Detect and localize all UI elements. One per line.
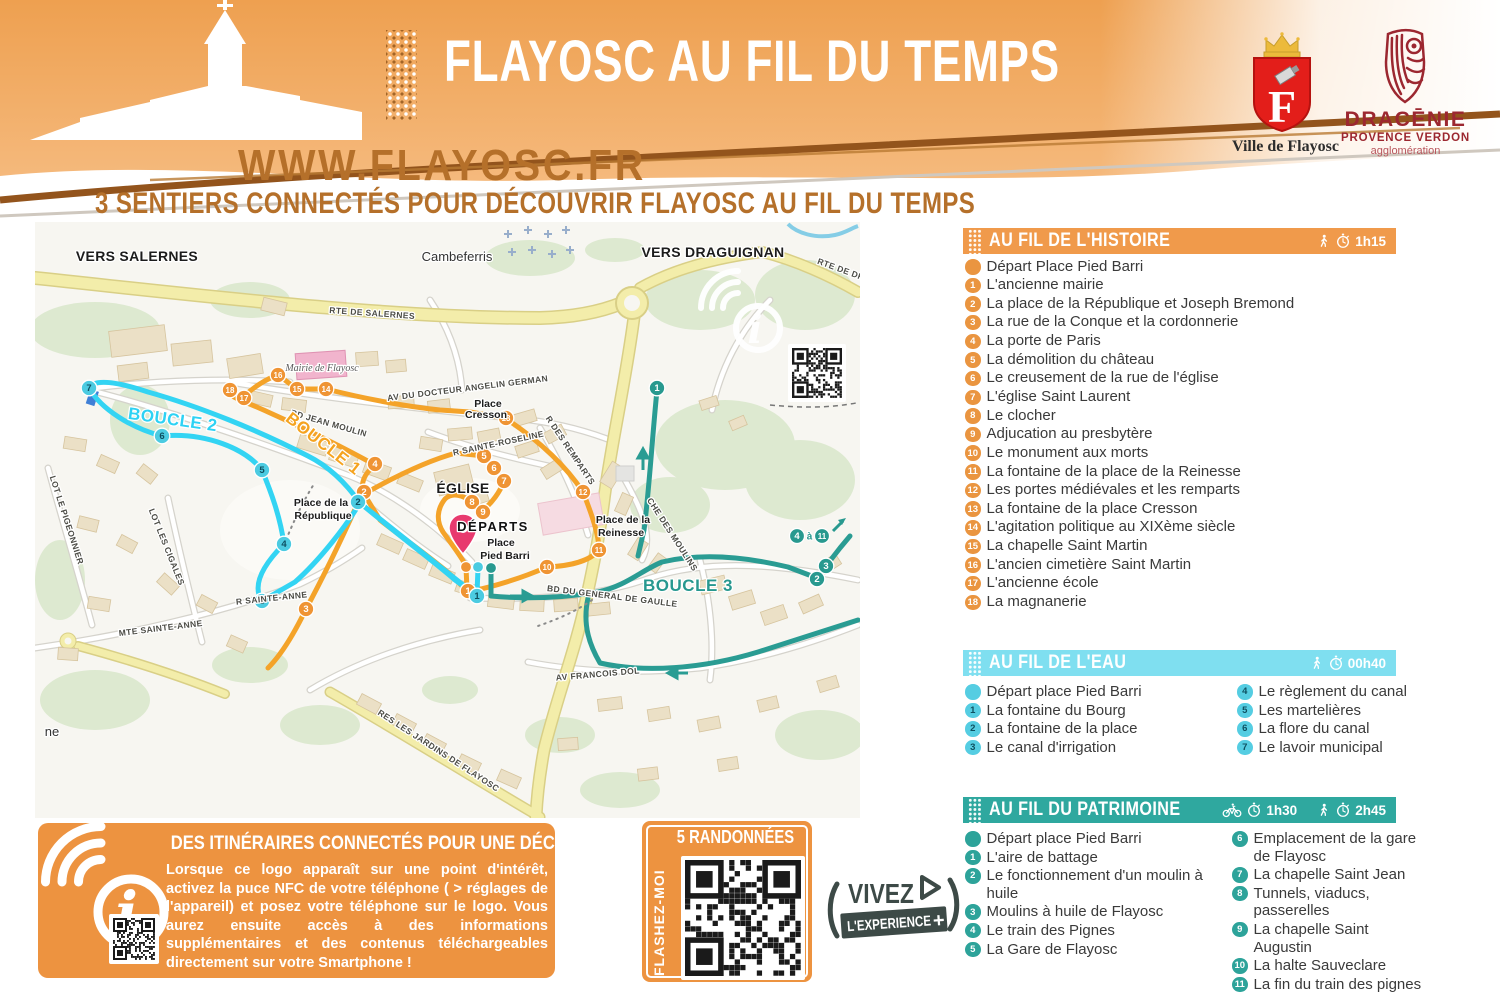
- walk-duration: 1h15: [1355, 234, 1386, 249]
- map-label: Reinesse: [598, 527, 644, 539]
- poi-label: Le clocher: [987, 407, 1056, 425]
- poi-label: La halte Sauveclare: [1254, 957, 1387, 975]
- poi-number-badge: 3: [965, 740, 981, 756]
- section-title: AU FIL DU PATRIMOINE: [989, 799, 1181, 821]
- poi-item: 9Adjucation au presbytère: [965, 425, 1395, 444]
- randonnees-qr-box: 5 RANDONNÉES FLASHEZ-MOI: [642, 821, 812, 982]
- poi-number-badge: 1: [965, 703, 981, 719]
- poi-label: L'aire de battage: [987, 849, 1098, 867]
- poi-number-badge: 12: [965, 483, 981, 499]
- nfc-info-icon: [701, 271, 780, 353]
- poi-item: 18La magnanerie: [965, 593, 1395, 612]
- poi-label: Le train des Pignes: [987, 922, 1115, 940]
- poi-number-badge: 4: [965, 334, 981, 350]
- section-eau-header: AU FIL DE L'EAU 00h40: [963, 650, 1396, 676]
- route-marker-number: 2: [814, 574, 819, 585]
- route-marker-orange: [476, 448, 492, 464]
- section-histoire-header: AU FIL DE L'HISTOIRE 1h15: [963, 228, 1396, 254]
- dracenie-agglo: agglomération: [1338, 145, 1473, 157]
- poi-item: Départ place Pied Barri: [965, 830, 1237, 848]
- poi-item: 5La démolition du château: [965, 350, 1395, 369]
- poi-number-badge: 6: [965, 371, 981, 387]
- duration-info: 00h40: [1309, 655, 1386, 671]
- poi-item: 7La chapelle Saint Jean: [1232, 866, 1422, 884]
- poi-label: La chapelle Saint Jean: [1254, 866, 1406, 884]
- page-title: FLAYOSC AU FIL DU TEMPS: [444, 28, 1060, 95]
- depart-dot-teal: [486, 563, 497, 574]
- route-marker-orange: [460, 583, 476, 599]
- route-marker-number: 2: [355, 497, 360, 508]
- route-marker-cyan: [469, 588, 485, 604]
- website-url: WWW.FLAYOSC.FR: [238, 141, 646, 191]
- route-marker-number: 1: [465, 586, 471, 597]
- map-label: VERS SALERNES: [76, 248, 198, 264]
- poi-number-badge: 7: [1232, 867, 1248, 883]
- route-marker-teal: [649, 380, 665, 396]
- poi-item: Départ place Pied Barri: [965, 683, 1227, 701]
- dracenie-subname: PROVENCE VERDON: [1338, 132, 1473, 144]
- poi-label: L'ancienne école: [987, 574, 1099, 592]
- randonnees-qr-code: [678, 853, 808, 983]
- map-label: AV DU DOCTEUR ANGELIN GERMAN: [387, 373, 549, 403]
- vivez-word: VIVEZ: [848, 878, 914, 909]
- poi-label: La rue de la Conque et la cordonnerie: [987, 313, 1239, 331]
- route-marker-cyan: [350, 494, 366, 510]
- poi-number-badge: 13: [965, 501, 981, 517]
- flayosc-crest-icon: F: [1232, 30, 1332, 136]
- map-qr-code: [788, 344, 846, 402]
- ville-de-flayosc-logo: F Ville de Flayosc: [1232, 30, 1332, 156]
- poi-number-badge: 3: [965, 315, 981, 331]
- poi-item: 6Emplacement de la gare de Flayosc: [1232, 830, 1422, 865]
- route-marker-number: 6: [491, 463, 496, 474]
- poi-number-badge: 5: [965, 942, 981, 958]
- route-boucle-1: [230, 375, 599, 668]
- map-label: Place de la: [596, 514, 650, 526]
- route-marker-teal: [809, 571, 825, 587]
- route-marker-cyan: [154, 428, 170, 444]
- poi-item: 1L'aire de battage: [965, 849, 1237, 867]
- streets: [35, 300, 858, 690]
- poi-item: 2Le fonctionnement d'un moulin à huile: [965, 867, 1237, 902]
- map-label: LOT LE PIGEONNIER: [48, 474, 86, 565]
- route-marker-orange: [496, 473, 512, 489]
- map-label: Place de la: [294, 497, 348, 509]
- poi-label: La fin du train des pignes: [1254, 976, 1422, 994]
- map-label: BD DU GENERAL DE GAULLE: [547, 583, 679, 609]
- poi-label: La chapelle Saint Augustin: [1254, 921, 1423, 956]
- svg-text:F: F: [1268, 81, 1296, 132]
- map-label: BOUCLE 1: [282, 408, 365, 478]
- ville-logo-caption: Ville de Flayosc: [1232, 138, 1332, 156]
- poi-label: L'agitation politique au XIXème siècle: [987, 518, 1236, 536]
- route-marker-orange: [289, 381, 305, 397]
- main-roads: [35, 252, 858, 817]
- poi-item: 2La fontaine de la place: [965, 720, 1227, 738]
- route-marker-number: 4: [372, 459, 378, 470]
- poi-label: Le fonctionnement d'un moulin à huile: [987, 867, 1203, 902]
- poi-number-badge: 2: [965, 868, 981, 884]
- map-label: BD JEAN MOULIN: [290, 407, 369, 438]
- depart-marker: [965, 684, 981, 700]
- map-label: MTE SAINTE-ANNE: [118, 618, 203, 638]
- route-marker-number: 6: [159, 431, 164, 442]
- roundabout: [616, 287, 648, 319]
- walker-icon: [1309, 656, 1324, 671]
- departure-pin: [449, 514, 477, 554]
- nfc-box-title: DES ITINÉRAIRES CONNECTÉS POUR UNE DÉCOU…: [171, 832, 520, 855]
- route-boucle-2: [89, 382, 478, 601]
- poi-label: Les portes médiévales et les remparts: [987, 481, 1240, 499]
- panel-root: i FLAYO: [0, 0, 1500, 1000]
- poi-item: 17L'ancienne école: [965, 574, 1395, 593]
- map-label: AV FRANCOIS DOL: [555, 665, 640, 682]
- route-marker-number: 7: [501, 476, 506, 487]
- route-marker-number: 12: [579, 488, 588, 497]
- vivez-experience-logo: VIVEZ L'EXPERIENCE +: [826, 866, 961, 950]
- checker-icon: [968, 798, 981, 823]
- map-label: RTE DE SALERNES: [329, 305, 415, 321]
- poi-label: La flore du canal: [1259, 720, 1370, 738]
- poi-number-badge: 16: [965, 557, 981, 573]
- route-marker-orange: [498, 410, 514, 426]
- route-marker-cyan: [254, 593, 270, 609]
- poi-number-badge: 18: [965, 595, 981, 611]
- poi-label: L'ancien cimetière Saint Martin: [987, 556, 1192, 574]
- poi-item: 11La fontaine de la place de la Reinesse: [965, 462, 1395, 481]
- histoire-poi-list: Départ Place Pied Barri1L'ancienne mairi…: [965, 257, 1395, 611]
- map-label: République: [294, 510, 351, 522]
- poi-item: 6La flore du canal: [1237, 720, 1412, 738]
- poi-item: 16L'ancien cimetière Saint Martin: [965, 555, 1395, 574]
- poi-item: 15La chapelle Saint Martin: [965, 537, 1395, 556]
- route-marker-orange: [222, 382, 238, 398]
- route-marker-number: 2: [361, 487, 366, 498]
- route-marker-number: 1: [654, 383, 660, 394]
- nfc-qr-code: [108, 913, 160, 965]
- stopwatch-icon: [1335, 233, 1351, 249]
- map-labels: VERS SALERNESCambeferrisVERS DRAGUIGNANR…: [45, 244, 860, 794]
- route-marker-orange: [475, 504, 491, 520]
- poi-number-badge: 2: [965, 721, 981, 737]
- stopwatch-icon: [1335, 802, 1351, 818]
- poi-label: La fontaine du Bourg: [987, 702, 1126, 720]
- walk-duration: 2h45: [1355, 803, 1386, 818]
- cyclist-icon: [1222, 803, 1242, 818]
- route-marker-number: 14: [322, 385, 331, 394]
- map-label: ÉGLISE: [436, 480, 489, 496]
- nfc-box-body: Lorsque ce logo apparaît sur une point d…: [166, 861, 548, 973]
- poi-label: Le creusement de la rue de l'église: [987, 369, 1219, 387]
- poi-number-badge: 8: [965, 408, 981, 424]
- poi-label: L'ancienne mairie: [987, 276, 1104, 294]
- route-marker-orange: [270, 367, 286, 383]
- route-marker-number: 18: [226, 386, 235, 395]
- buildings: [58, 297, 842, 789]
- route-marker-cyan: [254, 462, 270, 478]
- stopwatch-icon: [1328, 655, 1344, 671]
- route-marker-cyan: [81, 380, 97, 396]
- map-label: ne: [45, 724, 59, 739]
- route-boucle-3: [491, 390, 858, 668]
- duration-info-walk: 2h45: [1316, 802, 1386, 818]
- section-title: AU FIL DE L'HISTOIRE: [989, 230, 1260, 252]
- section-title: AU FIL DE L'EAU: [989, 652, 1254, 674]
- svg-text:4: 4: [794, 531, 800, 542]
- poi-label: La place de la République et Joseph Brem…: [987, 295, 1295, 313]
- route-marker-number: 17: [240, 394, 249, 403]
- bike-duration: 1h30: [1266, 803, 1297, 818]
- poi-item: 7Le lavoir municipal: [1237, 739, 1412, 757]
- route-marker-number: 3: [259, 596, 264, 607]
- poi-item: 2La place de la République et Joseph Bre…: [965, 294, 1395, 313]
- poi-item: 10La halte Sauveclare: [1232, 957, 1422, 975]
- duration-info-bike: 1h30: [1222, 802, 1297, 818]
- poi-label: La porte de Paris: [987, 332, 1101, 350]
- parking-marker: [86, 389, 99, 406]
- svg-text:à: à: [807, 532, 813, 543]
- poi-item: 6Le creusement de la rue de l'église: [965, 369, 1395, 388]
- dotted-trails: [286, 484, 592, 626]
- poi-item: 3Moulins à huile de Flayosc: [965, 903, 1237, 921]
- poi-number-badge: 3: [965, 904, 981, 920]
- poi-item: 3La rue de la Conque et la cordonnerie: [965, 313, 1395, 332]
- map-label: R DES REMPARTS: [544, 414, 598, 487]
- poi-number-badge: 2: [965, 296, 981, 312]
- route-marker-orange: [298, 601, 314, 617]
- dracenie-logo: DRACĒNIE PROVENCE VERDON agglomération: [1338, 28, 1473, 157]
- route-marker-number: 5: [259, 465, 265, 476]
- map-label: RTE DE DR: [816, 256, 860, 282]
- poi-number-badge: 5: [965, 352, 981, 368]
- map-label: Pied Barri: [480, 550, 530, 562]
- poi-label: Départ place Pied Barri: [987, 683, 1142, 701]
- poi-label: La fontaine de la place Cresson: [987, 500, 1198, 518]
- poi-number-badge: 11: [1232, 977, 1248, 993]
- poi-number-badge: 9: [965, 427, 981, 443]
- poi-item: 8Tunnels, viaducs, passerelles: [1232, 885, 1422, 920]
- map-markers: 1234567891011121314151617181234567123411…: [81, 367, 846, 617]
- walker-icon: [1316, 803, 1331, 818]
- route-marker-orange: [367, 456, 383, 472]
- qr-box-side-label: FLASHEZ-MOI: [651, 869, 667, 976]
- poi-number-badge: 1: [965, 850, 981, 866]
- map-label: BOUCLE 3: [643, 576, 733, 595]
- poi-label: La fontaine de la place: [987, 720, 1138, 738]
- route-marker-number: 15: [293, 385, 302, 394]
- poi-item: 12Les portes médiévales et les remparts: [965, 481, 1395, 500]
- plus-sign: +: [932, 909, 945, 932]
- poi-label: Départ Place Pied Barri: [987, 258, 1144, 276]
- route-marker-number: 3: [303, 604, 308, 615]
- checker-icon: [968, 229, 981, 254]
- poi-label: La Gare de Flayosc: [987, 941, 1118, 959]
- depart-marker: [965, 831, 981, 847]
- poi-label: La magnanerie: [987, 593, 1087, 611]
- poi-item: 11La fin du train des pignes: [1232, 976, 1422, 994]
- poi-number-badge: 15: [965, 539, 981, 555]
- route-marker-number: 1: [474, 591, 480, 602]
- poi-label: Le lavoir municipal: [1259, 739, 1383, 757]
- poi-item: 10Le monument aux morts: [965, 443, 1395, 462]
- route-marker-teal: [818, 558, 834, 574]
- nfc-info-box: DES ITINÉRAIRES CONNECTÉS POUR UNE DÉCOU…: [38, 823, 555, 978]
- map-label: Cambeferris: [422, 249, 493, 264]
- map-label: Place: [474, 398, 502, 410]
- section-patrimoine-header: AU FIL DU PATRIMOINE 1h30 2h45: [963, 797, 1396, 823]
- mairie-building: [295, 350, 347, 379]
- poi-label: Tunnels, viaducs, passerelles: [1254, 885, 1423, 920]
- walker-icon: [1316, 234, 1331, 249]
- poi-item: 8Le clocher: [965, 406, 1395, 425]
- poi-label: Adjucation au presbytère: [987, 425, 1153, 443]
- dracenie-name: DRACĒNIE: [1338, 108, 1473, 132]
- stopwatch-icon: [1246, 802, 1262, 818]
- poi-number-badge: 4: [965, 923, 981, 939]
- svg-text:11: 11: [818, 532, 827, 541]
- poi-label: L'église Saint Laurent: [987, 388, 1131, 406]
- poi-item: 4La porte de Paris: [965, 332, 1395, 351]
- qr-box-title: 5 RANDONNÉES: [677, 827, 793, 848]
- poi-number-badge: 10: [1232, 958, 1248, 974]
- route-marker-orange: [591, 542, 607, 558]
- map-label: BOUCLE 2: [127, 404, 219, 435]
- map-label: R SAINTE-ROSELINE: [452, 429, 545, 458]
- poi-label: Les martelières: [1259, 702, 1362, 720]
- eau-poi-list-col2: 4Le règlement du canal5Les martelières6L…: [1237, 683, 1412, 757]
- route-marker-number: 5: [481, 451, 487, 462]
- poi-item: 13La fontaine de la place Cresson: [965, 499, 1395, 518]
- poi-number-badge: 8: [1232, 886, 1248, 902]
- route-marker-orange: [356, 484, 372, 500]
- poi-number-badge: 1: [965, 278, 981, 294]
- depart-dot-cyan: [473, 562, 484, 573]
- map-label: Place: [487, 537, 515, 549]
- poi-label: Moulins à huile de Flayosc: [987, 903, 1164, 921]
- map-label: R SAINTE-ANNE: [235, 589, 307, 606]
- route-marker-number: 3: [823, 561, 828, 572]
- route-marker-number: 16: [274, 371, 283, 380]
- route-marker-orange: [486, 460, 502, 476]
- patrimoine-poi-list-col1: Départ place Pied Barri1L'aire de battag…: [965, 830, 1237, 959]
- poi-number-badge: 7: [1237, 740, 1253, 756]
- checker-icon: [968, 651, 981, 676]
- map-label: LOT LES CIGALES: [147, 507, 187, 587]
- route-marker-number: 7: [86, 383, 91, 394]
- poi-number-badge: 17: [965, 576, 981, 592]
- patrimoine-poi-list-col2: 6Emplacement de la gare de Flayosc7La ch…: [1232, 830, 1422, 994]
- poi-number-badge: 6: [1237, 721, 1253, 737]
- map-label: RES LES JARDINS DE FLAYOSC: [376, 707, 501, 793]
- poi-item: 7L'église Saint Laurent: [965, 387, 1395, 406]
- poi-number-badge: 10: [965, 445, 981, 461]
- poi-item: 4Le train des Pignes: [965, 922, 1237, 940]
- map-label: Cresson: [465, 409, 507, 421]
- route-marker-orange: [464, 494, 480, 510]
- poi-label: Le canal d'irrigation: [987, 739, 1117, 757]
- title-dot-pattern: [386, 30, 417, 120]
- poi-item: 4Le règlement du canal: [1237, 683, 1412, 701]
- poi-number-badge: 4: [1237, 684, 1253, 700]
- map-label: Mairie de Flayosc: [284, 363, 359, 374]
- poi-label: Départ place Pied Barri: [987, 830, 1142, 848]
- depart-marker: [965, 259, 981, 275]
- poi-item: 1L'ancienne mairie: [965, 276, 1395, 295]
- poi-item: 3Le canal d'irrigation: [965, 739, 1227, 757]
- eau-poi-list-col1: Départ place Pied Barri1La fontaine du B…: [965, 683, 1227, 757]
- map-label: CHE DES MOULINS: [645, 496, 700, 573]
- poi-item: 5La Gare de Flayosc: [965, 941, 1237, 959]
- poi-item: 14L'agitation politique au XIXème siècle: [965, 518, 1395, 537]
- green-areas: [35, 238, 860, 808]
- poi-label: La chapelle Saint Martin: [987, 537, 1148, 555]
- poi-number-badge: 14: [965, 520, 981, 536]
- route-marker-number: 9: [480, 507, 485, 518]
- route-marker-orange: [575, 484, 591, 500]
- walk-duration: 00h40: [1348, 656, 1386, 671]
- poi-item: 5Les martelières: [1237, 702, 1412, 720]
- poi-item: 9La chapelle Saint Augustin: [1232, 921, 1422, 956]
- poi-label: Le monument aux morts: [987, 444, 1149, 462]
- map-label: VERS DRAGUIGNAN: [642, 244, 785, 260]
- route-marker-number: 8: [469, 497, 474, 508]
- poi-number-badge: 11: [965, 464, 981, 480]
- route-marker-orange: [236, 390, 252, 406]
- direction-arrows: [510, 449, 688, 678]
- poi-number-badge: 9: [1232, 922, 1248, 938]
- poi-label: Le règlement du canal: [1259, 683, 1407, 701]
- route-marker-number: 13: [502, 414, 511, 423]
- route-marker-number: 11: [595, 546, 604, 555]
- poi-label: La fontaine de la place de la Reinesse: [987, 463, 1241, 481]
- poi-number-badge: 5: [1237, 703, 1253, 719]
- poi-label: La démolition du château: [987, 351, 1155, 369]
- poi-number-badge: 6: [1232, 831, 1248, 847]
- route-marker-number: 4: [281, 539, 287, 550]
- depart-dot-orange: [461, 562, 472, 573]
- duration-info: 1h15: [1316, 233, 1386, 249]
- page-subtitle: 3 SENTIERS CONNECTÉS POUR DÉCOUVRIR FLAY…: [95, 187, 975, 221]
- poi-label: Emplacement de la gare de Flayosc: [1254, 830, 1417, 865]
- route-marker-cyan: [276, 536, 292, 552]
- trail-map: 1234567891011121314151617181234567123411…: [35, 222, 860, 818]
- poi-item: Départ Place Pied Barri: [965, 257, 1395, 276]
- route-marker-orange: [318, 381, 334, 397]
- dracenie-shield-icon: [1338, 28, 1473, 106]
- map-label: DÉPARTS: [457, 519, 529, 534]
- poi-number-badge: 7: [965, 390, 981, 406]
- play-icon: [922, 877, 939, 898]
- poi-item: 1La fontaine du Bourg: [965, 702, 1227, 720]
- route-marker-number: 10: [543, 563, 552, 572]
- route-marker-orange: [539, 559, 555, 575]
